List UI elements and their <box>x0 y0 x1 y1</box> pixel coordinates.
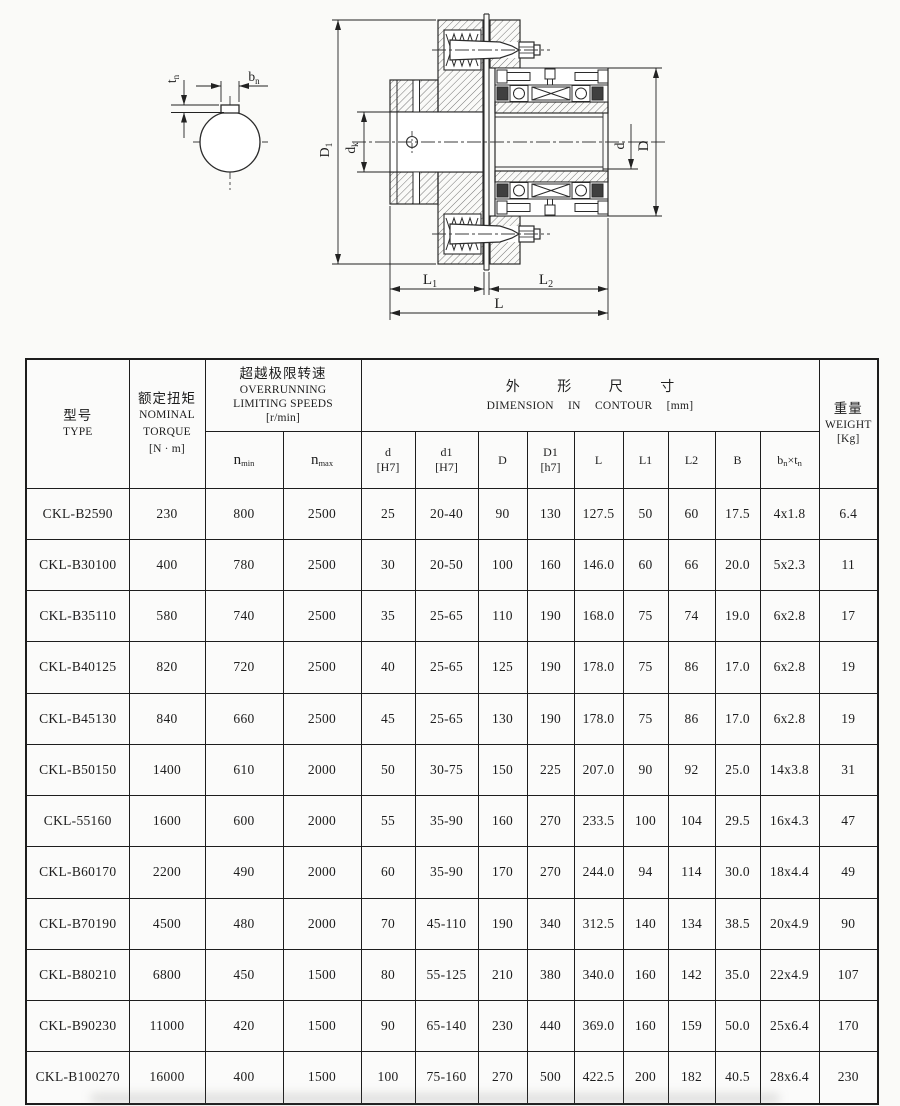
table-cell: CKL-B35110 <box>26 591 129 642</box>
table-cell: 100 <box>478 539 527 590</box>
table-cell: 35-90 <box>415 796 478 847</box>
table-cell: 18x4.4 <box>760 847 819 898</box>
table-cell: 490 <box>205 847 283 898</box>
table-cell: 190 <box>527 591 574 642</box>
table-cell: CKL-B70190 <box>26 898 129 949</box>
table-cell: 25-65 <box>415 693 478 744</box>
table-cell: 6x2.8 <box>760 642 819 693</box>
table-row: CKL-B4513084066025004525-65130190178.075… <box>26 693 878 744</box>
table-cell: 30-75 <box>415 744 478 795</box>
dim-label-d: d <box>613 143 628 150</box>
table-cell: 580 <box>129 591 205 642</box>
table-cell: 90 <box>819 898 878 949</box>
speeds-label-zh: 超越极限转速 <box>240 366 327 383</box>
table-cell: CKL-B2590 <box>26 488 129 539</box>
table-cell: 60 <box>361 847 415 898</box>
table-cell: 160 <box>527 539 574 590</box>
table-cell: 31 <box>819 744 878 795</box>
torque-unit: [N · m] <box>149 442 185 456</box>
table-row: CKL-B902301100042015009065-140230440369.… <box>26 1001 878 1052</box>
table-cell: 25 <box>361 488 415 539</box>
table-cell: 800 <box>205 488 283 539</box>
table-cell: 312.5 <box>574 898 623 949</box>
table-cell: 190 <box>527 693 574 744</box>
table-body: CKL-B259023080025002520-4090130127.55060… <box>26 488 878 1104</box>
col-header-nmax: nmax <box>283 431 361 488</box>
table-cell: 230 <box>478 1001 527 1052</box>
table-cell: 480 <box>205 898 283 949</box>
speeds-label-en2: LIMITING SPEEDS <box>233 397 333 411</box>
table-cell: 6x2.8 <box>760 693 819 744</box>
table-cell: 17 <box>819 591 878 642</box>
table-cell: 140 <box>623 898 668 949</box>
table-cell: 1400 <box>129 744 205 795</box>
table-cell: 420 <box>205 1001 283 1052</box>
table-cell: 47 <box>819 796 878 847</box>
table-cell: 820 <box>129 642 205 693</box>
table-cell: 6x2.8 <box>760 591 819 642</box>
table-cell: 178.0 <box>574 693 623 744</box>
table-cell: 2500 <box>283 488 361 539</box>
table-cell: 90 <box>623 744 668 795</box>
table-cell: CKL-B40125 <box>26 642 129 693</box>
table-cell: 5x2.3 <box>760 539 819 590</box>
table-cell: 25-65 <box>415 642 478 693</box>
table-cell: 86 <box>668 693 715 744</box>
table-cell: 22x4.9 <box>760 949 819 1000</box>
table-cell: 400 <box>129 539 205 590</box>
table-cell: 35 <box>361 591 415 642</box>
table-cell: 80 <box>361 949 415 1000</box>
spec-table: 型号 TYPE 额定扭矩 NOMINAL TORQUE [N · m] <box>25 358 879 1105</box>
dims-label-en: DIMENSION IN CONTOUR [mm] <box>487 400 694 412</box>
speeds-label-en1: OVERRUNNING <box>240 383 327 397</box>
table-cell: 74 <box>668 591 715 642</box>
table-cell: 2000 <box>283 847 361 898</box>
table-cell: 35-90 <box>415 847 478 898</box>
table-row: CKL-B3511058074025003525-65110190168.075… <box>26 591 878 642</box>
col-header-nmin: nmin <box>205 431 283 488</box>
table-cell: 90 <box>361 1001 415 1052</box>
table-cell: 114 <box>668 847 715 898</box>
col-header-torque: 额定扭矩 NOMINAL TORQUE [N · m] <box>129 359 205 488</box>
weight-label-en: WEIGHT <box>825 418 872 432</box>
table-cell: 125 <box>478 642 527 693</box>
table-cell: 1500 <box>283 949 361 1000</box>
table-cell: 17.5 <box>715 488 760 539</box>
dim-label-bn: bn <box>248 69 260 86</box>
table-cell: 840 <box>129 693 205 744</box>
dim-label-L2: L2 <box>539 272 553 290</box>
table-cell: 75 <box>623 591 668 642</box>
col-header-type: 型号 TYPE <box>26 359 129 488</box>
table-cell: 210 <box>478 949 527 1000</box>
table-cell: 2000 <box>283 744 361 795</box>
table-cell: 45 <box>361 693 415 744</box>
table-cell: 1600 <box>129 796 205 847</box>
speeds-unit: [r/min] <box>266 411 300 425</box>
table-cell: 11 <box>819 539 878 590</box>
table-cell: 25-65 <box>415 591 478 642</box>
table-cell: 45-110 <box>415 898 478 949</box>
table-cell: 6.4 <box>819 488 878 539</box>
table-cell: 19 <box>819 693 878 744</box>
table-cell: 110 <box>478 591 527 642</box>
table-cell: 233.5 <box>574 796 623 847</box>
table-cell: CKL-B90230 <box>26 1001 129 1052</box>
table-cell: 150 <box>478 744 527 795</box>
dim-label-dk: dk <box>343 142 360 154</box>
table-cell: CKL-B60170 <box>26 847 129 898</box>
table-cell: 2000 <box>283 796 361 847</box>
table-cell: 2500 <box>283 693 361 744</box>
table-cell: 2200 <box>129 847 205 898</box>
table-cell: 2500 <box>283 642 361 693</box>
type-label-en: TYPE <box>63 425 93 439</box>
table-cell: 20.0 <box>715 539 760 590</box>
table-cell: 100 <box>623 796 668 847</box>
col-header-D: D <box>478 431 527 488</box>
table-cell: 160 <box>623 1001 668 1052</box>
table-cell: CKL-55160 <box>26 796 129 847</box>
col-header-L1: L1 <box>623 431 668 488</box>
table-cell: 75 <box>623 642 668 693</box>
table-cell: 146.0 <box>574 539 623 590</box>
table-cell: 600 <box>205 796 283 847</box>
table-cell: 720 <box>205 642 283 693</box>
table-cell: 134 <box>668 898 715 949</box>
table-cell: 160 <box>623 949 668 1000</box>
col-group-speeds: 超越极限转速 OVERRUNNING LIMITING SPEEDS [r/mi… <box>205 359 361 431</box>
table-cell: 340 <box>527 898 574 949</box>
table-cell: 159 <box>668 1001 715 1052</box>
weight-label-zh: 重量 <box>834 401 863 418</box>
table-cell: 17.0 <box>715 693 760 744</box>
type-label-zh: 型号 <box>63 408 92 425</box>
col-header-L: L <box>574 431 623 488</box>
table-cell: 190 <box>527 642 574 693</box>
table-cell: 14x3.8 <box>760 744 819 795</box>
dim-label-L1: L1 <box>423 272 437 290</box>
torque-label-en1: NOMINAL <box>139 408 195 422</box>
table-cell: 190 <box>478 898 527 949</box>
table-cell: 60 <box>623 539 668 590</box>
table-cell: 127.5 <box>574 488 623 539</box>
table-cell: 25x6.4 <box>760 1001 819 1052</box>
table-cell: 50 <box>623 488 668 539</box>
table-cell: 170 <box>819 1001 878 1052</box>
table-cell: 40 <box>361 642 415 693</box>
table-cell: 230 <box>129 488 205 539</box>
col-header-weight: 重量 WEIGHT [Kg] <box>819 359 878 488</box>
dim-label-tn: tn <box>164 74 181 83</box>
table-cell: 50.0 <box>715 1001 760 1052</box>
table-cell: 50 <box>361 744 415 795</box>
table-cell: CKL-B50150 <box>26 744 129 795</box>
table-cell: 70 <box>361 898 415 949</box>
table-cell: 65-140 <box>415 1001 478 1052</box>
dims-label-zh: 外 形 尺 寸 <box>489 379 692 397</box>
table-cell: 4500 <box>129 898 205 949</box>
table-cell: 230 <box>819 1052 878 1104</box>
table-cell: 55 <box>361 796 415 847</box>
table-row: CKL-55160160060020005535-90160270233.510… <box>26 796 878 847</box>
table-cell: 86 <box>668 642 715 693</box>
table-cell: 207.0 <box>574 744 623 795</box>
col-header-d1: d1[H7] <box>415 431 478 488</box>
table-cell: 104 <box>668 796 715 847</box>
table-cell: 17.0 <box>715 642 760 693</box>
table-cell: 94 <box>623 847 668 898</box>
table-cell: 2000 <box>283 898 361 949</box>
col-header-bntn: bn×tn <box>760 431 819 488</box>
table-cell: 30 <box>361 539 415 590</box>
table-cell: 6800 <box>129 949 205 1000</box>
table-cell: 20x4.9 <box>760 898 819 949</box>
table-row: CKL-B50150140061020005030-75150225207.09… <box>26 744 878 795</box>
table-cell: 55-125 <box>415 949 478 1000</box>
table-cell: 4x1.8 <box>760 488 819 539</box>
weight-unit: [Kg] <box>837 432 860 446</box>
table-cell: 19.0 <box>715 591 760 642</box>
technical-drawing: tn bn D1 dk d D L1 L2 L <box>0 0 900 352</box>
scan-smudge <box>90 1094 780 1103</box>
table-cell: 66 <box>668 539 715 590</box>
table-cell: 38.5 <box>715 898 760 949</box>
table-cell: 142 <box>668 949 715 1000</box>
table-row: CKL-B80210680045015008055-125210380340.0… <box>26 949 878 1000</box>
table-cell: 19 <box>819 642 878 693</box>
table-cell: 25.0 <box>715 744 760 795</box>
table-cell: 75 <box>623 693 668 744</box>
table-cell: 16x4.3 <box>760 796 819 847</box>
table-row: CKL-B4012582072025004025-65125190178.075… <box>26 642 878 693</box>
table-cell: 610 <box>205 744 283 795</box>
col-header-L2: L2 <box>668 431 715 488</box>
table-cell: 170 <box>478 847 527 898</box>
table-cell: 740 <box>205 591 283 642</box>
table-cell: 270 <box>527 847 574 898</box>
table-cell: 11000 <box>129 1001 205 1052</box>
table-cell: 107 <box>819 949 878 1000</box>
col-header-B: B <box>715 431 760 488</box>
table-cell: 1500 <box>283 1001 361 1052</box>
table-cell: 168.0 <box>574 591 623 642</box>
table-row: CKL-B70190450048020007045-110190340312.5… <box>26 898 878 949</box>
dim-label-L: L <box>494 296 503 312</box>
table-cell: 244.0 <box>574 847 623 898</box>
dim-label-D: D <box>636 140 652 151</box>
table-cell: 35.0 <box>715 949 760 1000</box>
table-cell: 92 <box>668 744 715 795</box>
col-header-d: d[H7] <box>361 431 415 488</box>
table-row: CKL-B259023080025002520-4090130127.55060… <box>26 488 878 539</box>
table-cell: 160 <box>478 796 527 847</box>
table-cell: 20-40 <box>415 488 478 539</box>
table-row: CKL-B60170220049020006035-90170270244.09… <box>26 847 878 898</box>
table-cell: 225 <box>527 744 574 795</box>
table-cell: 130 <box>527 488 574 539</box>
table-cell: 60 <box>668 488 715 539</box>
table-cell: 2500 <box>283 539 361 590</box>
table-cell: 130 <box>478 693 527 744</box>
table-cell: 270 <box>527 796 574 847</box>
table-cell: 369.0 <box>574 1001 623 1052</box>
table-cell: 29.5 <box>715 796 760 847</box>
dim-label-D1: D1 <box>318 142 335 157</box>
table-cell: 178.0 <box>574 642 623 693</box>
table-cell: 20-50 <box>415 539 478 590</box>
table-cell: CKL-B30100 <box>26 539 129 590</box>
table-cell: 90 <box>478 488 527 539</box>
table-cell: 380 <box>527 949 574 1000</box>
table-cell: 49 <box>819 847 878 898</box>
table-cell: 660 <box>205 693 283 744</box>
table-row: CKL-B3010040078025003020-50100160146.060… <box>26 539 878 590</box>
table-cell: 450 <box>205 949 283 1000</box>
shaft-cross-section <box>200 105 260 172</box>
table-cell: 440 <box>527 1001 574 1052</box>
table-cell: 30.0 <box>715 847 760 898</box>
col-header-D1: D1[h7] <box>527 431 574 488</box>
table-cell: CKL-B45130 <box>26 693 129 744</box>
table-cell: CKL-B80210 <box>26 949 129 1000</box>
torque-label-zh: 额定扭矩 <box>138 391 196 408</box>
table-cell: 780 <box>205 539 283 590</box>
table-cell: 2500 <box>283 591 361 642</box>
col-group-dimensions: 外 形 尺 寸 DIMENSION IN CONTOUR [mm] <box>361 359 819 431</box>
table-cell: 340.0 <box>574 949 623 1000</box>
torque-label-en2: TORQUE <box>143 425 191 439</box>
datasheet-page: tn bn D1 dk d D L1 L2 L 型号 TYPE <box>0 0 900 1106</box>
